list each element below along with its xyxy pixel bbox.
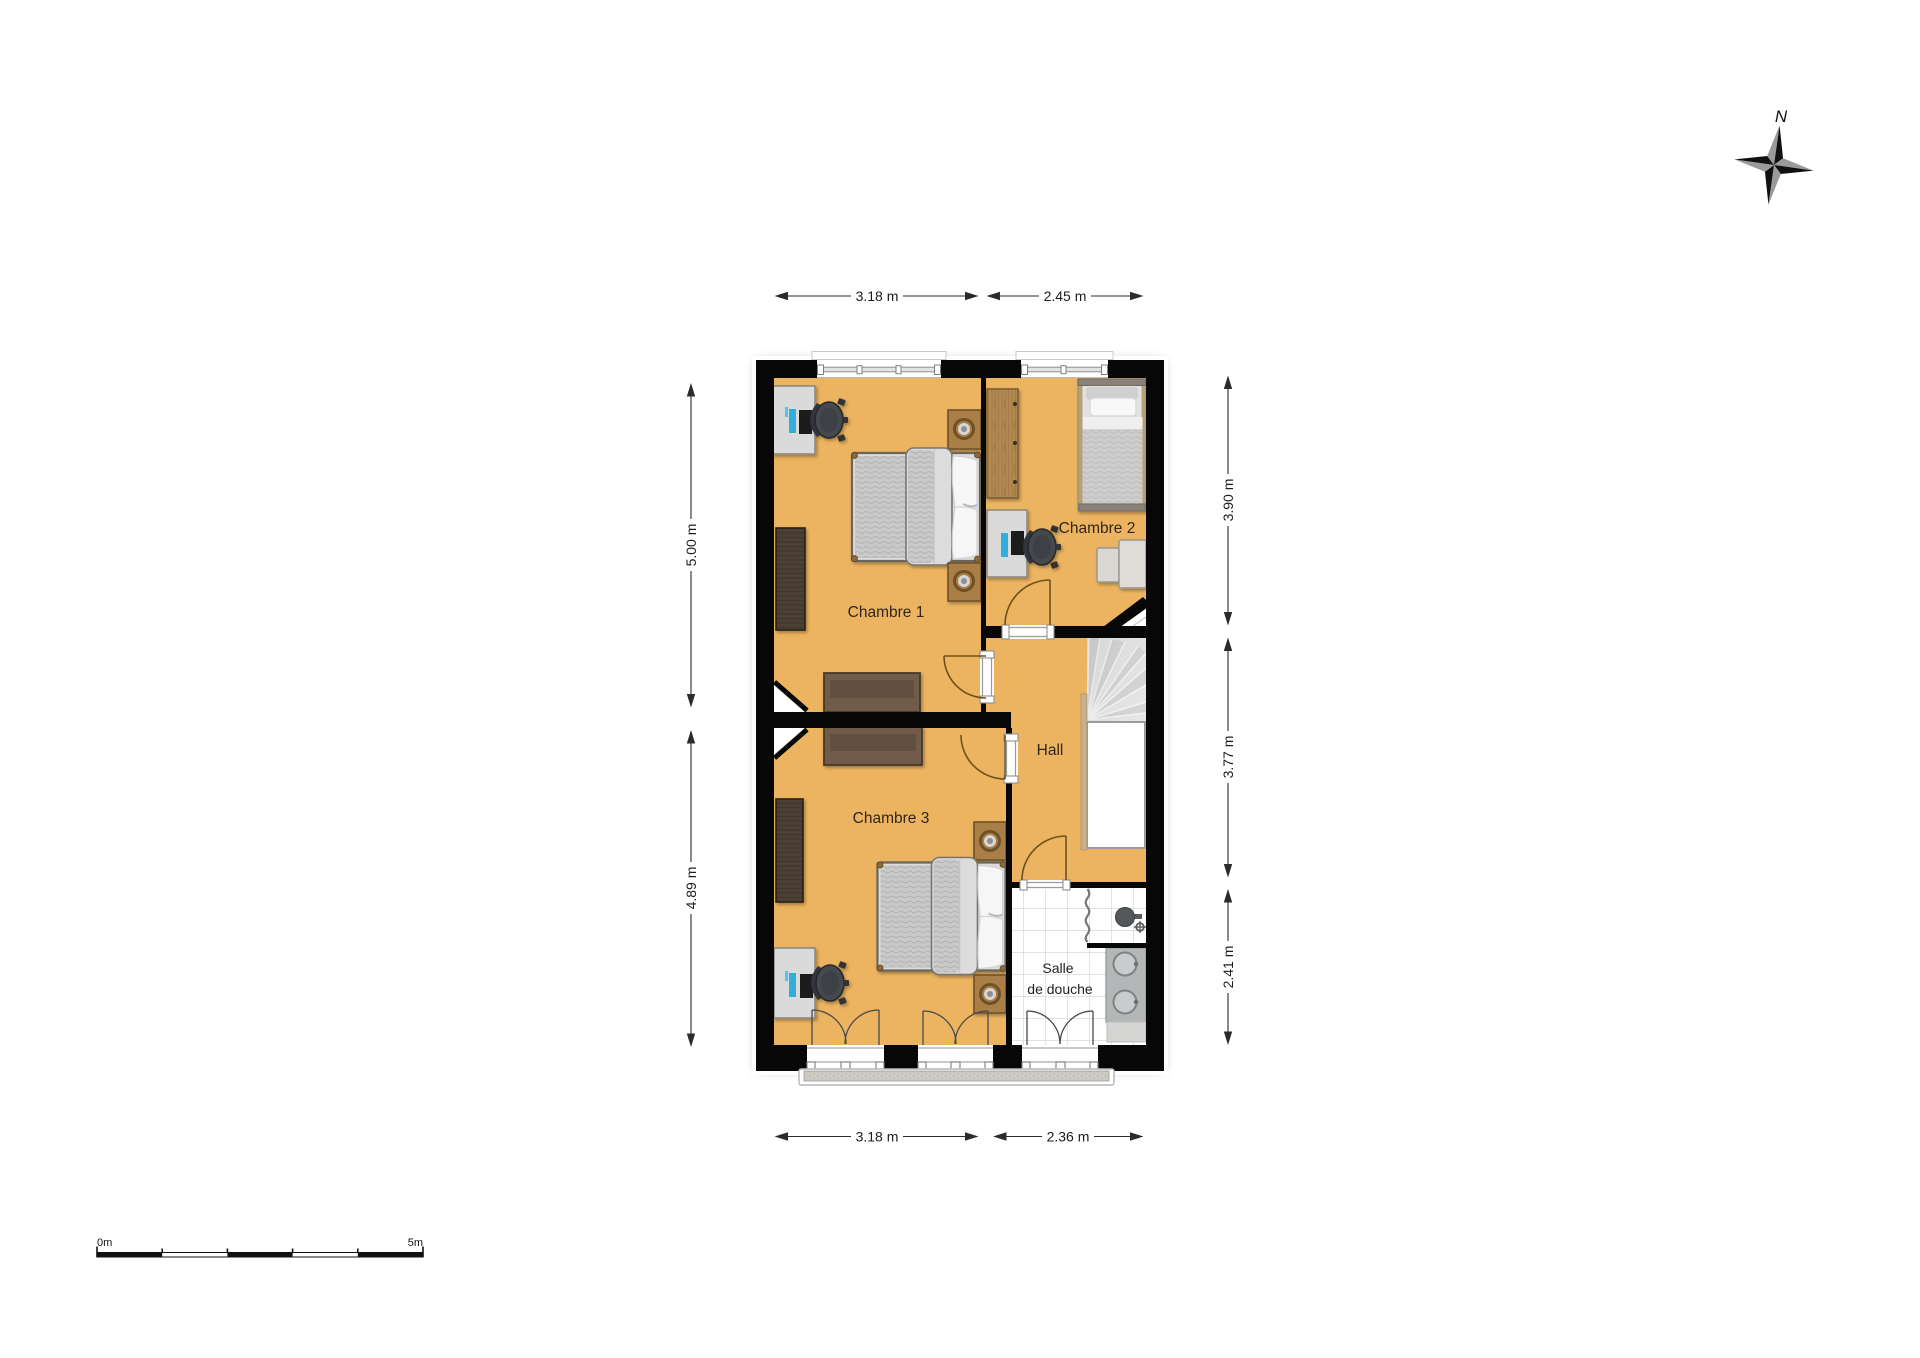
svg-text:3.18 m: 3.18 m (856, 1129, 899, 1145)
svg-text:5m: 5m (408, 1237, 423, 1249)
svg-text:Chambre 3: Chambre 3 (853, 810, 930, 827)
svg-text:Hall: Hall (1037, 742, 1064, 759)
svg-text:Chambre 2: Chambre 2 (1059, 520, 1136, 537)
svg-text:5.00 m: 5.00 m (683, 524, 699, 567)
svg-text:de douche: de douche (1027, 981, 1093, 997)
svg-text:3.77 m: 3.77 m (1220, 736, 1236, 779)
svg-text:Salle: Salle (1042, 960, 1073, 976)
svg-text:N: N (1775, 107, 1788, 126)
svg-text:3.18 m: 3.18 m (856, 288, 899, 304)
svg-text:0m: 0m (97, 1237, 112, 1249)
svg-text:3.90 m: 3.90 m (1220, 479, 1236, 522)
svg-text:4.89 m: 4.89 m (683, 867, 699, 910)
svg-text:2.41 m: 2.41 m (1220, 946, 1236, 989)
svg-text:2.45 m: 2.45 m (1044, 288, 1087, 304)
svg-text:Chambre 1: Chambre 1 (848, 604, 925, 621)
svg-text:2.36 m: 2.36 m (1047, 1129, 1090, 1145)
